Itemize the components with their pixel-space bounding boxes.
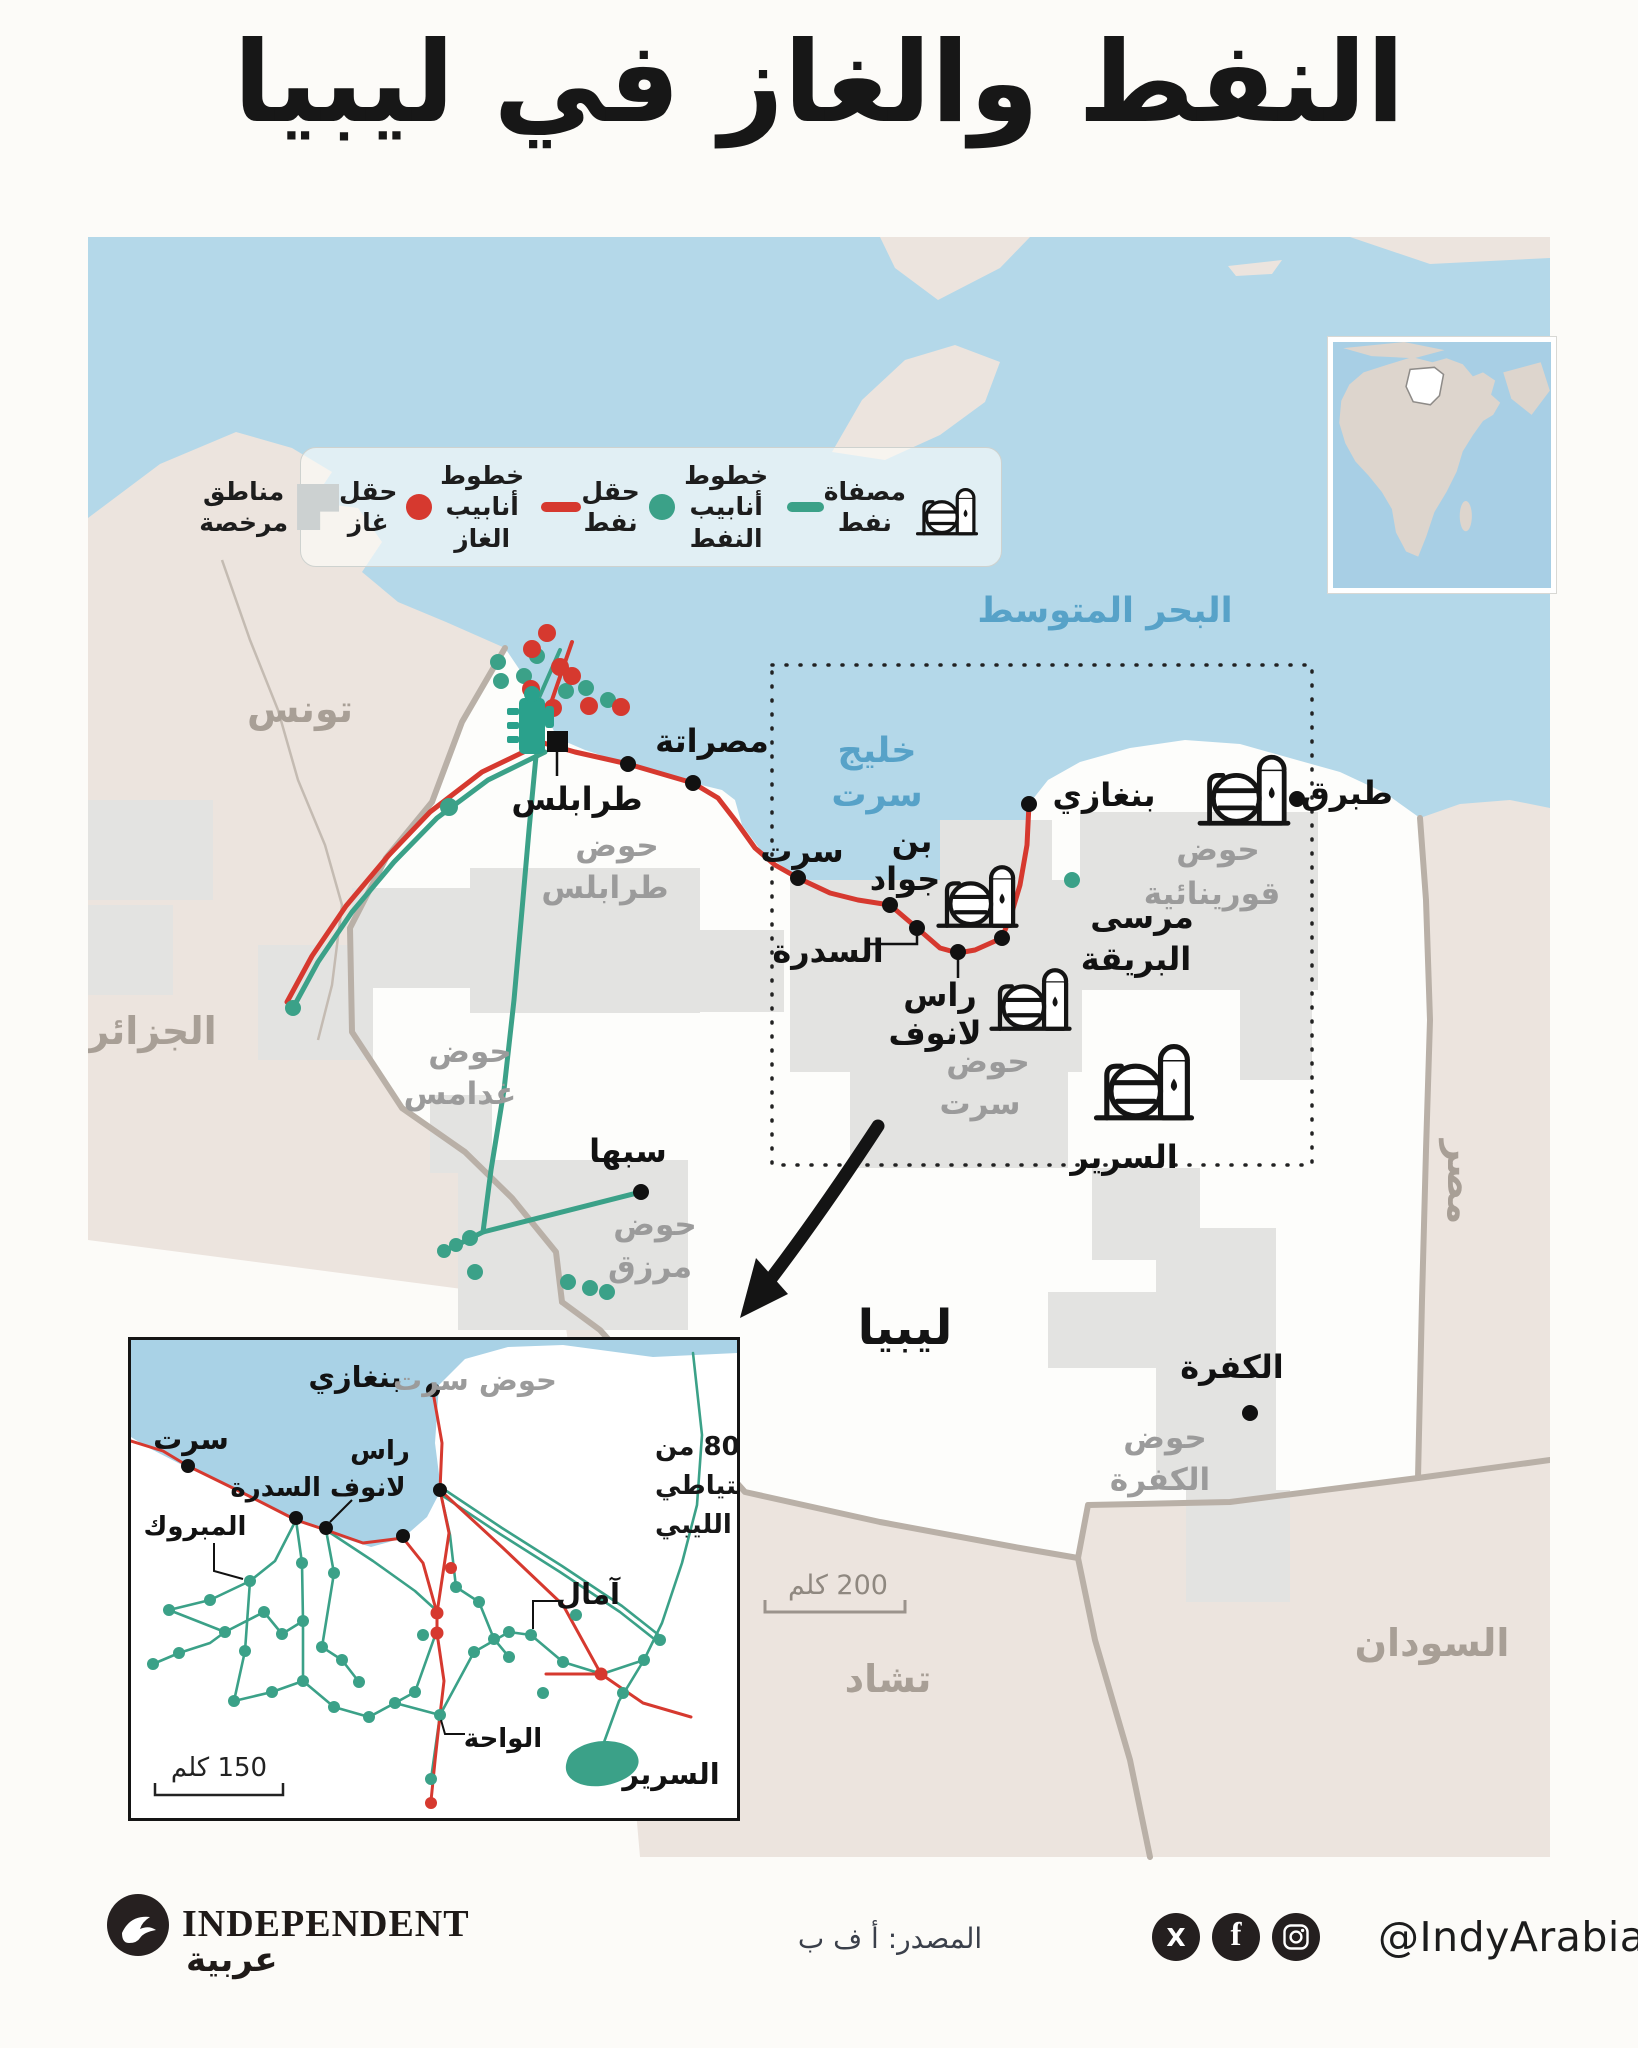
tripoli-marker xyxy=(547,731,568,752)
map-legend: مصفاةنفط خطوطأنابيب النفط حقلنفط خطوطأنا… xyxy=(300,447,1002,567)
sirte-basin-inset-map: 150 كلم بنغازي سرت راس لانوف السدرة المب… xyxy=(128,1337,740,1821)
city-tripoli: طرابلس xyxy=(511,780,642,818)
city-sirte: سرت xyxy=(760,832,844,870)
gas-field-swatch xyxy=(406,494,432,520)
inset-scale-label: 150 كلم xyxy=(171,1753,267,1783)
social-links: X f @IndyArabia xyxy=(1152,1913,1638,1961)
facebook-icon[interactable]: f xyxy=(1212,1913,1260,1961)
mediterranean-label: البحر المتوسط xyxy=(977,591,1232,631)
legend-refinery-line2: نفط xyxy=(824,507,906,538)
gulf-of-sirte-label-2: سرت xyxy=(831,775,922,815)
oil-field-swatch xyxy=(649,494,675,520)
basin-murzuq-1: حوض xyxy=(613,1207,696,1243)
country-label-sudan: السودان xyxy=(1355,1621,1510,1665)
city-tobruk: طبرق xyxy=(1301,774,1393,812)
legend-gas-pipeline-line1: خطوط xyxy=(432,460,532,491)
basin-cyrenaica-1: حوض xyxy=(1176,832,1259,868)
x-icon[interactable]: X xyxy=(1152,1913,1200,1961)
inset-city-waha: الواحة xyxy=(464,1724,542,1754)
inset-reserve-note-1: 80٪ من xyxy=(655,1432,737,1462)
city-misrata: مصراتة xyxy=(655,722,769,760)
basin-tripoli-1: حوض xyxy=(575,828,658,864)
legend-refinery-line1: مصفاة xyxy=(824,476,906,507)
inset-svg: 150 كلم بنغازي سرت راس لانوف السدرة المب… xyxy=(131,1340,737,1818)
legend-gas-field-line2: غاز xyxy=(339,507,397,538)
legend-item-oil-field: حقلنفط xyxy=(581,476,674,539)
licensed-area-swatch xyxy=(297,484,339,530)
basin-murzuq-2: مرزق xyxy=(608,1249,692,1285)
country-label-tunisia: تونس xyxy=(247,687,353,731)
inset-reserve-note-2: الاحتياطي xyxy=(655,1471,737,1501)
africa-map xyxy=(1333,342,1551,588)
madagascar xyxy=(1460,501,1472,531)
country-label-egypt: مصر xyxy=(1439,1138,1483,1225)
basin-ghadames-2: غدامس xyxy=(404,1076,517,1112)
inset-city-ras-lanuf-2: لانوف السدرة xyxy=(230,1473,405,1503)
brand-arabic: عربية xyxy=(186,1940,278,1980)
egypt-land xyxy=(1418,800,1550,1478)
legend-gas-field-line1: حقل xyxy=(339,476,397,507)
legend-item-gas-pipeline: خطوطأنابيب الغاز xyxy=(432,460,581,554)
inset-city-mabruk: المبروك xyxy=(144,1512,247,1542)
city-benghazi: بنغازي xyxy=(1053,776,1156,814)
inset-city-sarir: السرير xyxy=(620,1757,719,1791)
legend-item-gas-field: حقلغاز xyxy=(339,476,432,539)
main-scale-label: 200 كلم xyxy=(788,1570,888,1601)
basin-sirte-2: سرت xyxy=(940,1086,1021,1122)
legend-item-refinery: مصفاةنفط xyxy=(824,476,979,539)
inset-city-ras-lanuf-1: راس xyxy=(350,1436,410,1466)
legend-oil-pipeline-line1: خطوط xyxy=(675,460,778,491)
inset-basin-label: حوض سرت xyxy=(393,1363,557,1397)
gulf-of-sirte-label-1: خليج xyxy=(837,731,916,771)
city-ras-lanuf-1: راس xyxy=(903,976,977,1014)
city-marsa-brega-2: البريقة xyxy=(1081,940,1191,978)
legend-licensed-line2: مرخصة xyxy=(199,507,288,538)
city-bin-jawad-1: بن xyxy=(892,822,933,860)
legend-licensed-line1: مناطق xyxy=(199,476,288,507)
city-es-sidra: السدرة xyxy=(772,932,883,970)
city-marsa-brega-1: مرسى xyxy=(1090,898,1194,936)
legend-gas-pipeline-line2: أنابيب الغاز xyxy=(432,491,532,554)
basin-ghadames-1: حوض xyxy=(428,1034,511,1070)
city-sabha: سبها xyxy=(589,1132,667,1170)
social-handle[interactable]: @IndyArabia xyxy=(1378,1913,1638,1961)
country-label-chad: تشاد xyxy=(845,1657,932,1701)
legend-item-oil-pipeline: خطوطأنابيب النفط xyxy=(675,460,824,554)
oil-pipeline-swatch xyxy=(787,502,824,512)
basin-tripoli-2: طرابلس xyxy=(541,870,668,906)
legend-oil-field-line1: حقل xyxy=(581,476,639,507)
country-label-libya: ليبيا xyxy=(858,1300,953,1356)
legend-item-licensed-area: مناطقمرخصة xyxy=(199,476,339,539)
gas-pipeline-swatch xyxy=(541,502,581,512)
inset-city-amal: آمال xyxy=(556,1576,621,1611)
city-kufra: الكفرة xyxy=(1180,1348,1283,1386)
city-bin-jawad-2: جواد xyxy=(870,860,941,898)
legend-oil-pipeline-line2: أنابيب النفط xyxy=(675,491,778,554)
instagram-icon[interactable] xyxy=(1272,1913,1320,1961)
inset-city-sirte: سرت xyxy=(153,1422,229,1456)
basin-kufra-2: الكفرة xyxy=(1110,1462,1210,1498)
city-ras-lanuf-2: لانوف xyxy=(888,1014,981,1052)
independent-eagle-logo xyxy=(106,1893,170,1957)
source-credit: المصدر: أ ف ب xyxy=(640,1922,1140,1955)
infographic-root: النفط والغاز في ليبيا xyxy=(0,0,1638,2048)
legend-oil-field-line2: نفط xyxy=(581,507,639,538)
africa-locator-inset xyxy=(1328,337,1556,593)
basin-kufra-1: حوض xyxy=(1123,1420,1206,1456)
inset-reserve-note-3: النفطي الليبي xyxy=(655,1510,737,1540)
country-label-algeria: الجزائر xyxy=(88,1009,217,1053)
refinery-icon xyxy=(915,478,979,537)
page-title: النفط والغاز في ليبيا xyxy=(0,18,1638,148)
inset-city-benghazi: بنغازي xyxy=(308,1360,401,1394)
city-sarir: السرير xyxy=(1068,1138,1177,1176)
